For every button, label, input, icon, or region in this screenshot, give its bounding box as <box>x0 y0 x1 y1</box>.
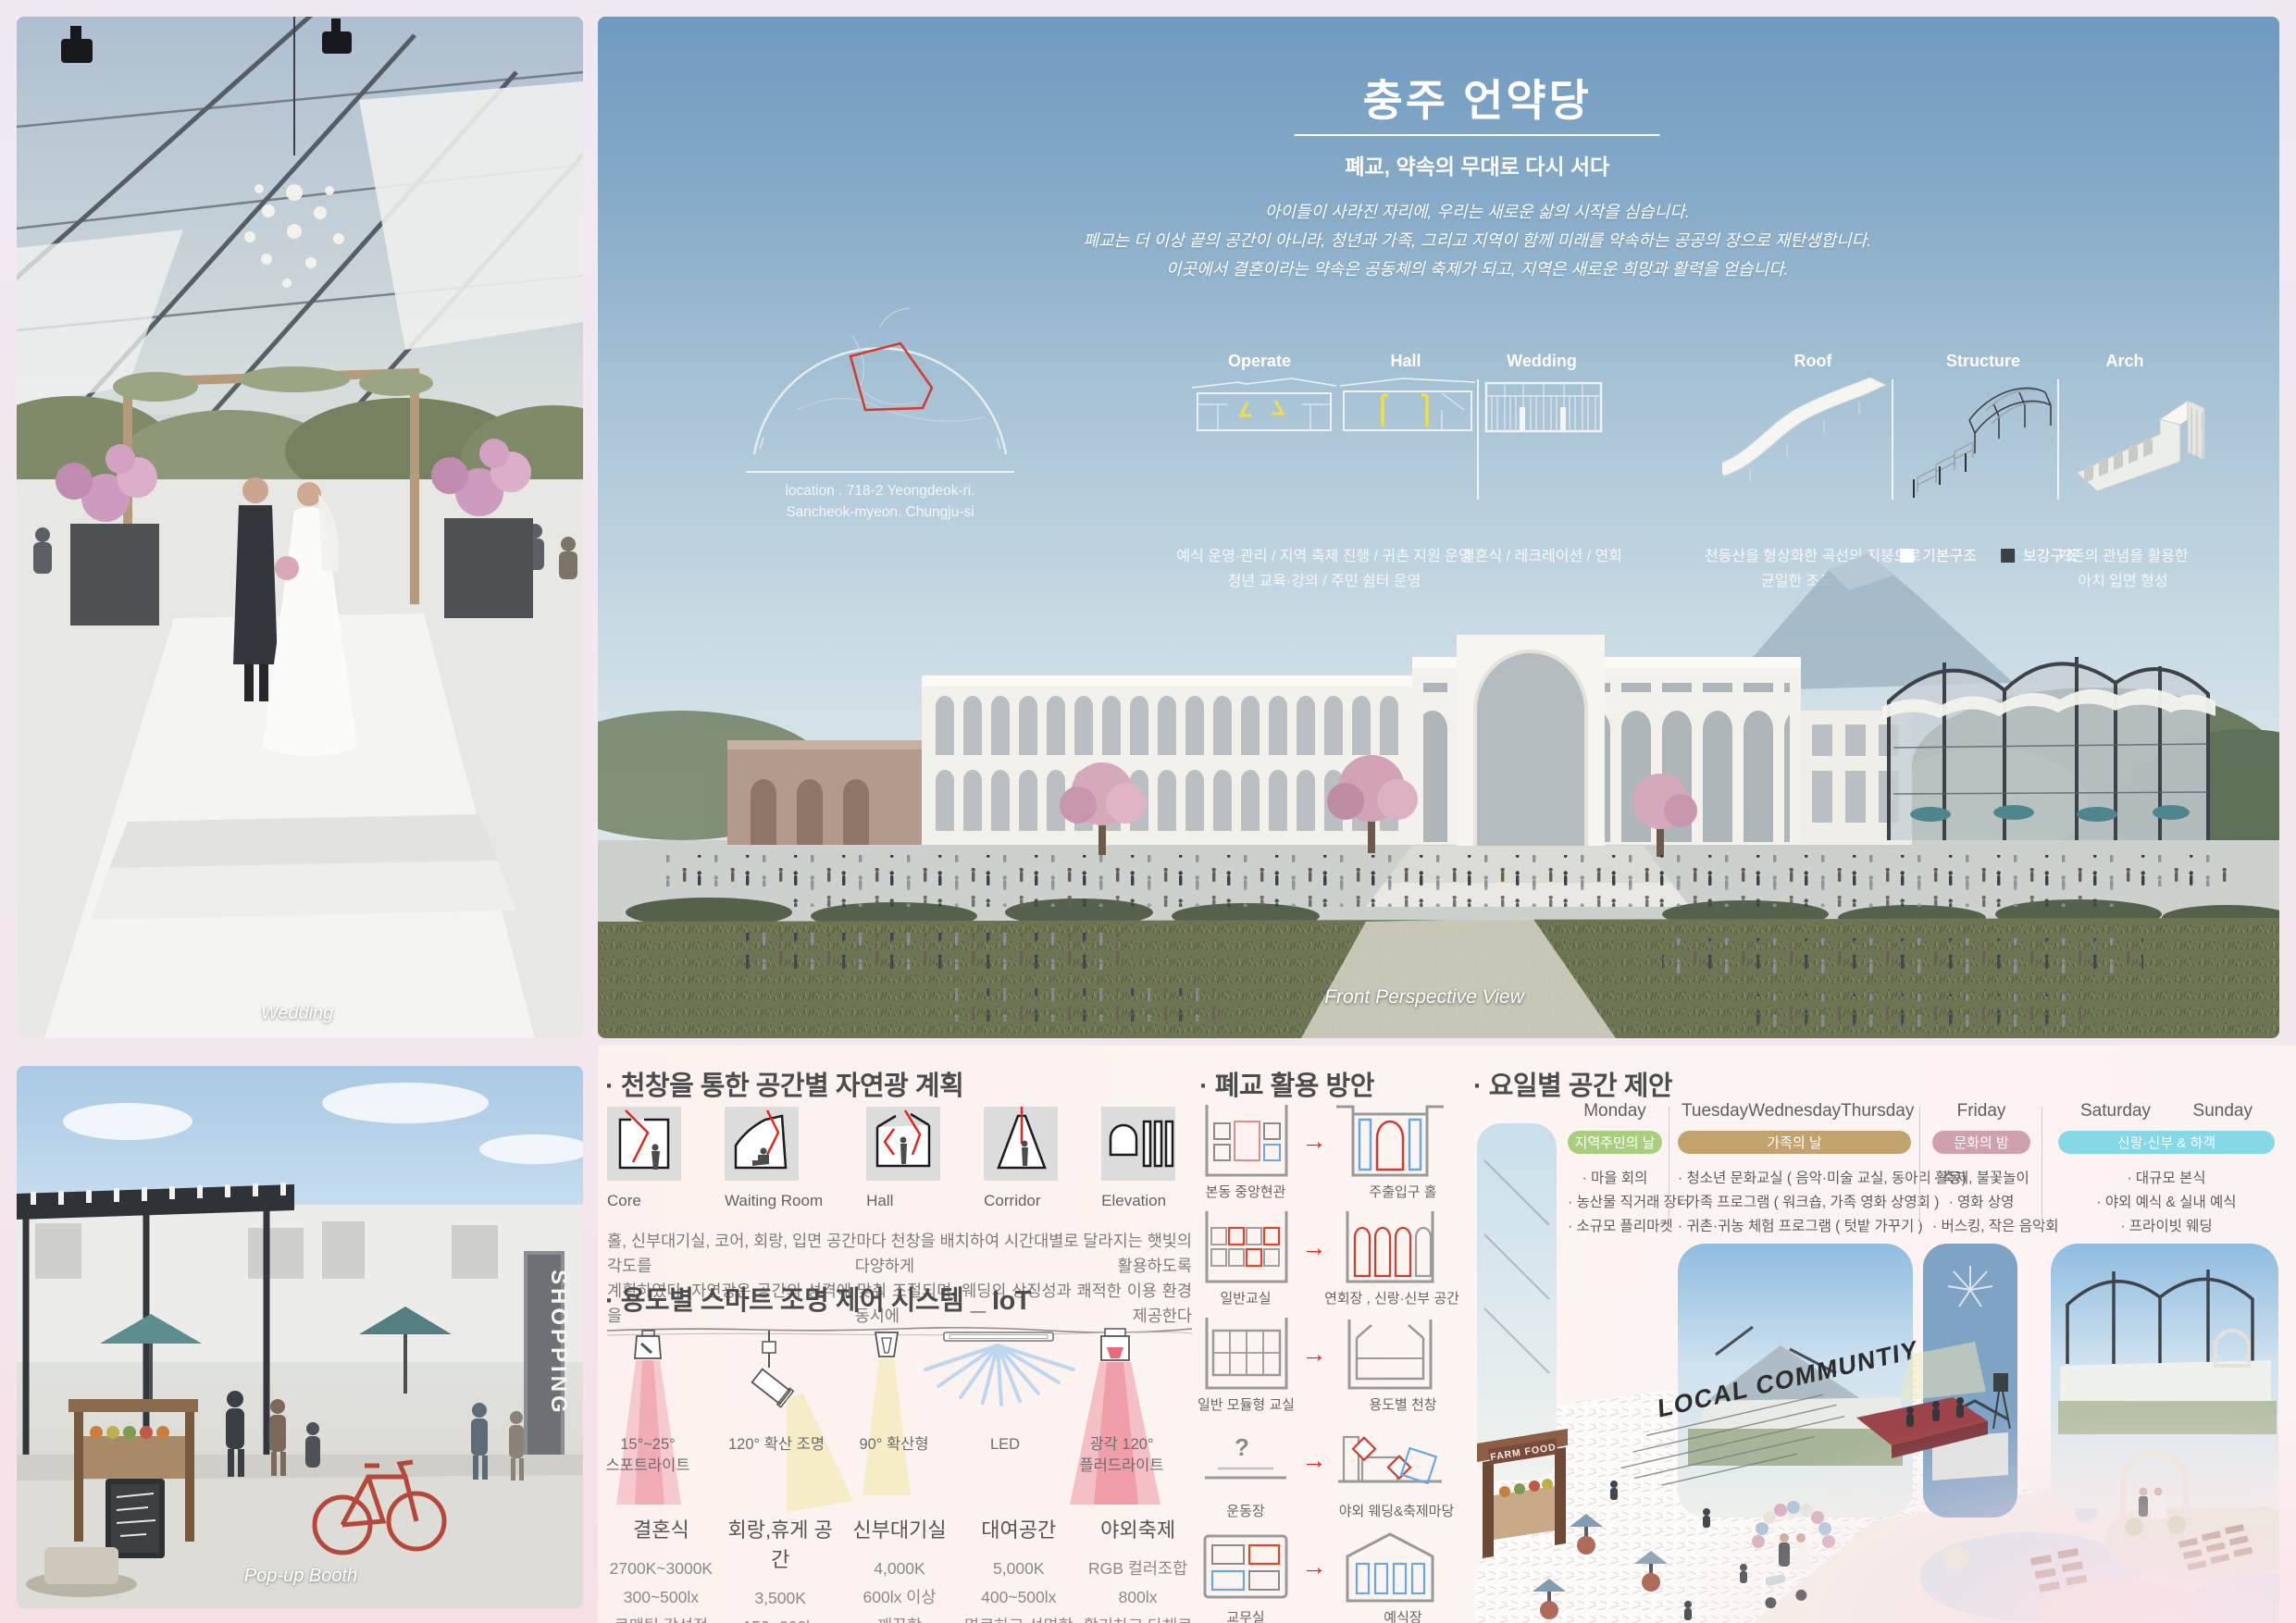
entrance-after-icon <box>1334 1101 1446 1181</box>
label-operate: Operate <box>1228 352 1291 371</box>
outdoor-wedding-arch <box>2030 1453 2254 1592</box>
playground-icon: ? <box>1198 1420 1294 1500</box>
daylight-corridor: Corridor <box>984 1107 1058 1210</box>
popup-caption: Pop-up Booth <box>244 1566 357 1587</box>
daylight-waiting-room: Waiting Room <box>725 1107 823 1210</box>
balloon-arch <box>1752 1501 1835 1569</box>
daylight-heading: · 천창을 통한 공간별 자연광 계획 <box>605 1064 963 1103</box>
reuse-row-entrance: → 본동 중앙현관주출입구 홀 <box>1198 1101 1471 1201</box>
weekly-isometric-collage: LOCAL COMMUNTIY FARM FOOD <box>1475 1123 2279 1623</box>
spec-bridal-room: 신부대기실4,000K600lx 이상깨끗함 <box>840 1514 960 1623</box>
red-arrow-icon: → <box>1294 1446 1334 1475</box>
title-underline <box>1295 134 1660 136</box>
corridor-daylight-icon <box>984 1107 1058 1181</box>
classroom-before-icon <box>1198 1208 1294 1287</box>
office-icon <box>1198 1527 1294 1606</box>
shopping-sign: SHOPPING <box>524 1251 571 1464</box>
label-hall: Hall <box>1390 352 1421 371</box>
diffuse-90-icon <box>863 1332 911 1495</box>
divider <box>1477 379 1479 500</box>
arch-concept-diagram <box>2071 373 2210 498</box>
daylight-diagrams: Core Waiting Room Hall <box>607 1107 1175 1210</box>
hall-section-diagram <box>1338 373 1477 438</box>
presentation-board: Wedding 충주 언약당 폐교, 약속의 무대로 다시 서다 아이들이 사라… <box>0 0 2296 1623</box>
label-arch: Arch <box>2105 352 2143 371</box>
diffuse-120-icon <box>751 1331 853 1512</box>
waiting-room-daylight-icon <box>725 1107 799 1181</box>
location-text: location . 718-2 Yeongdeok-ri.Sancheok-m… <box>741 480 1019 523</box>
banquet-after-icon <box>1334 1208 1446 1287</box>
reuse-row-playground: ? → 운동장야외 웨딩&축제마당 <box>1198 1420 1471 1520</box>
entrance-before-icon <box>1198 1101 1294 1181</box>
reuse-rows: → 본동 중앙현관주출입구 홀 <box>1198 1101 1471 1623</box>
wedding-photo-panel: Wedding <box>17 17 583 1038</box>
svg-text:SHOPPING: SHOPPING <box>546 1270 571 1417</box>
lighting-specs: 결혼식2700K~3000K300~500lx로맨틱,감성적 회랑,휴게 공간3… <box>602 1514 1198 1623</box>
divider <box>2057 379 2059 500</box>
red-arrow-icon: → <box>1294 1127 1334 1156</box>
reuse-row-office: → 교무실예식장 <box>1198 1527 1471 1623</box>
reuse-row-classroom: → 일반교실연회장 , 신랑·신부 공간 <box>1198 1208 1471 1307</box>
spec-rental: 대여공간5,000K400~500lx명료하고 선명함 <box>959 1514 1078 1623</box>
red-arrow-icon: → <box>1294 1233 1334 1262</box>
spec-wedding: 결혼식2700K~3000K300~500lx로맨틱,감성적 <box>602 1514 721 1623</box>
wedding-car-icon <box>1759 1569 1808 1609</box>
project-subtitle: 폐교, 약속의 무대로 다시 서다 <box>1345 149 1609 180</box>
module-classroom-icon <box>1198 1314 1294 1394</box>
skylight-after-icon <box>1334 1314 1446 1394</box>
spotlight-icon <box>616 1331 681 1505</box>
led-bar-icon <box>925 1332 1074 1405</box>
reuse-row-module-classroom: → 일반 모듈형 교실용도별 천창 <box>1198 1314 1471 1414</box>
project-title: 충주 언약당 <box>1363 65 1592 129</box>
reuse-heading: · 폐교 활용 방안 <box>1199 1064 1374 1103</box>
location-diagram: location . 718-2 Yeongdeok-ri.Sancheok-m… <box>741 299 1019 523</box>
floodlight-icon <box>1070 1329 1160 1505</box>
red-arrow-icon: → <box>1294 1553 1334 1581</box>
operate-section-diagram <box>1190 373 1338 438</box>
site-dome-icon <box>741 299 1019 461</box>
popup-photo-panel: SHOPPING <box>17 1066 583 1608</box>
divider <box>1892 379 1893 500</box>
iot-heading: · 용도별 스마트 조명 제어 시스템 _ IoT <box>605 1279 1031 1318</box>
wedding-elevation-diagram <box>1484 379 1603 435</box>
ceremony-hall-icon <box>1334 1527 1446 1606</box>
popup-scene-illustration: SHOPPING <box>17 1066 583 1608</box>
iot-lighting-diagram <box>605 1319 1194 1514</box>
daylight-core: Core <box>607 1107 681 1210</box>
elevation-daylight-icon <box>1101 1107 1175 1181</box>
view-caption: Front Perspective View <box>1324 986 1524 1009</box>
label-wedding: Wedding <box>1507 352 1577 371</box>
hero-panel: 충주 언약당 폐교, 약속의 무대로 다시 서다 아이들이 사라진 자리에, 우… <box>598 17 2279 1038</box>
spec-corridor: 회랑,휴게 공간3,500K150~200lx편안함 <box>721 1514 840 1623</box>
building-render-illustration <box>598 535 2279 1038</box>
structure-concept-diagram <box>1905 368 2066 502</box>
wedding-scene-illustration <box>17 17 583 1038</box>
wedding-caption: Wedding <box>261 1003 334 1024</box>
svg-text:?: ? <box>1235 1433 1249 1461</box>
daylight-hall: Hall <box>866 1107 940 1210</box>
roof-concept-diagram <box>1722 376 1889 505</box>
daylight-elevation: Elevation <box>1101 1107 1175 1210</box>
outdoor-wedding-icon <box>1334 1420 1446 1500</box>
greenhouse-icon <box>1882 657 2215 840</box>
red-arrow-icon: → <box>1294 1340 1334 1369</box>
spec-festival: 야외축제RGB 컬러조합800lx활기차고 다채로움 <box>1078 1514 1198 1623</box>
core-daylight-icon <box>607 1107 681 1181</box>
bottom-band: · 천창을 통한 공간별 자연광 계획 Core Waiting R <box>598 1046 2296 1623</box>
intro-paragraph: 아이들이 사라진 자리에, 우리는 새로운 삶의 시작을 심습니다.폐교는 더 … <box>1083 198 1871 284</box>
hall-daylight-icon <box>866 1107 940 1181</box>
label-roof: Roof <box>1794 352 1832 371</box>
weekly-heading: · 요일별 공간 제안 <box>1473 1064 1672 1103</box>
